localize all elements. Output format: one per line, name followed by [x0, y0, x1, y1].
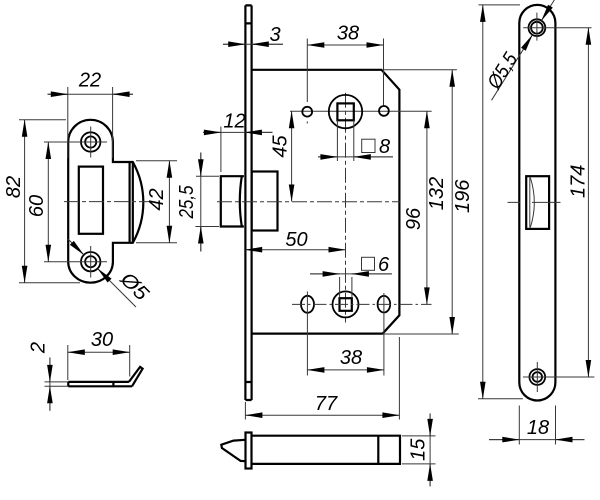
- svg-text:77: 77: [315, 393, 338, 415]
- svg-text:12: 12: [223, 111, 245, 133]
- svg-text:45: 45: [270, 135, 292, 158]
- svg-text:25,5: 25,5: [176, 185, 198, 220]
- svg-text:8: 8: [379, 136, 390, 158]
- svg-text:60: 60: [26, 195, 48, 217]
- svg-text:22: 22: [78, 70, 101, 92]
- svg-text:96: 96: [403, 207, 425, 230]
- svg-text:132: 132: [426, 177, 448, 210]
- svg-text:Ø5,5: Ø5,5: [483, 48, 523, 93]
- svg-text:6: 6: [378, 254, 390, 276]
- svg-text:50: 50: [285, 229, 307, 251]
- svg-text:38: 38: [340, 347, 362, 369]
- svg-text:3: 3: [269, 24, 280, 46]
- svg-text:Ø5: Ø5: [115, 268, 153, 306]
- svg-text:42: 42: [146, 188, 168, 210]
- svg-text:174: 174: [567, 165, 589, 198]
- svg-text:30: 30: [91, 329, 113, 351]
- svg-text:196: 196: [452, 179, 474, 213]
- svg-text:18: 18: [527, 417, 549, 439]
- svg-text:15: 15: [408, 438, 430, 461]
- svg-text:2: 2: [28, 342, 50, 354]
- svg-text:82: 82: [3, 176, 25, 198]
- svg-text:38: 38: [337, 23, 359, 45]
